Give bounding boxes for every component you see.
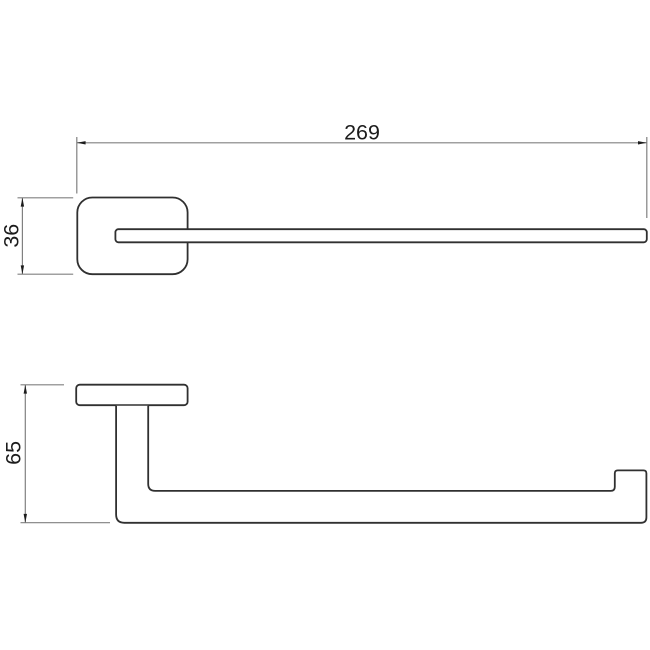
svg-text:36: 36 — [0, 224, 23, 248]
svg-text:65: 65 — [2, 441, 26, 465]
svg-text:269: 269 — [344, 120, 380, 144]
